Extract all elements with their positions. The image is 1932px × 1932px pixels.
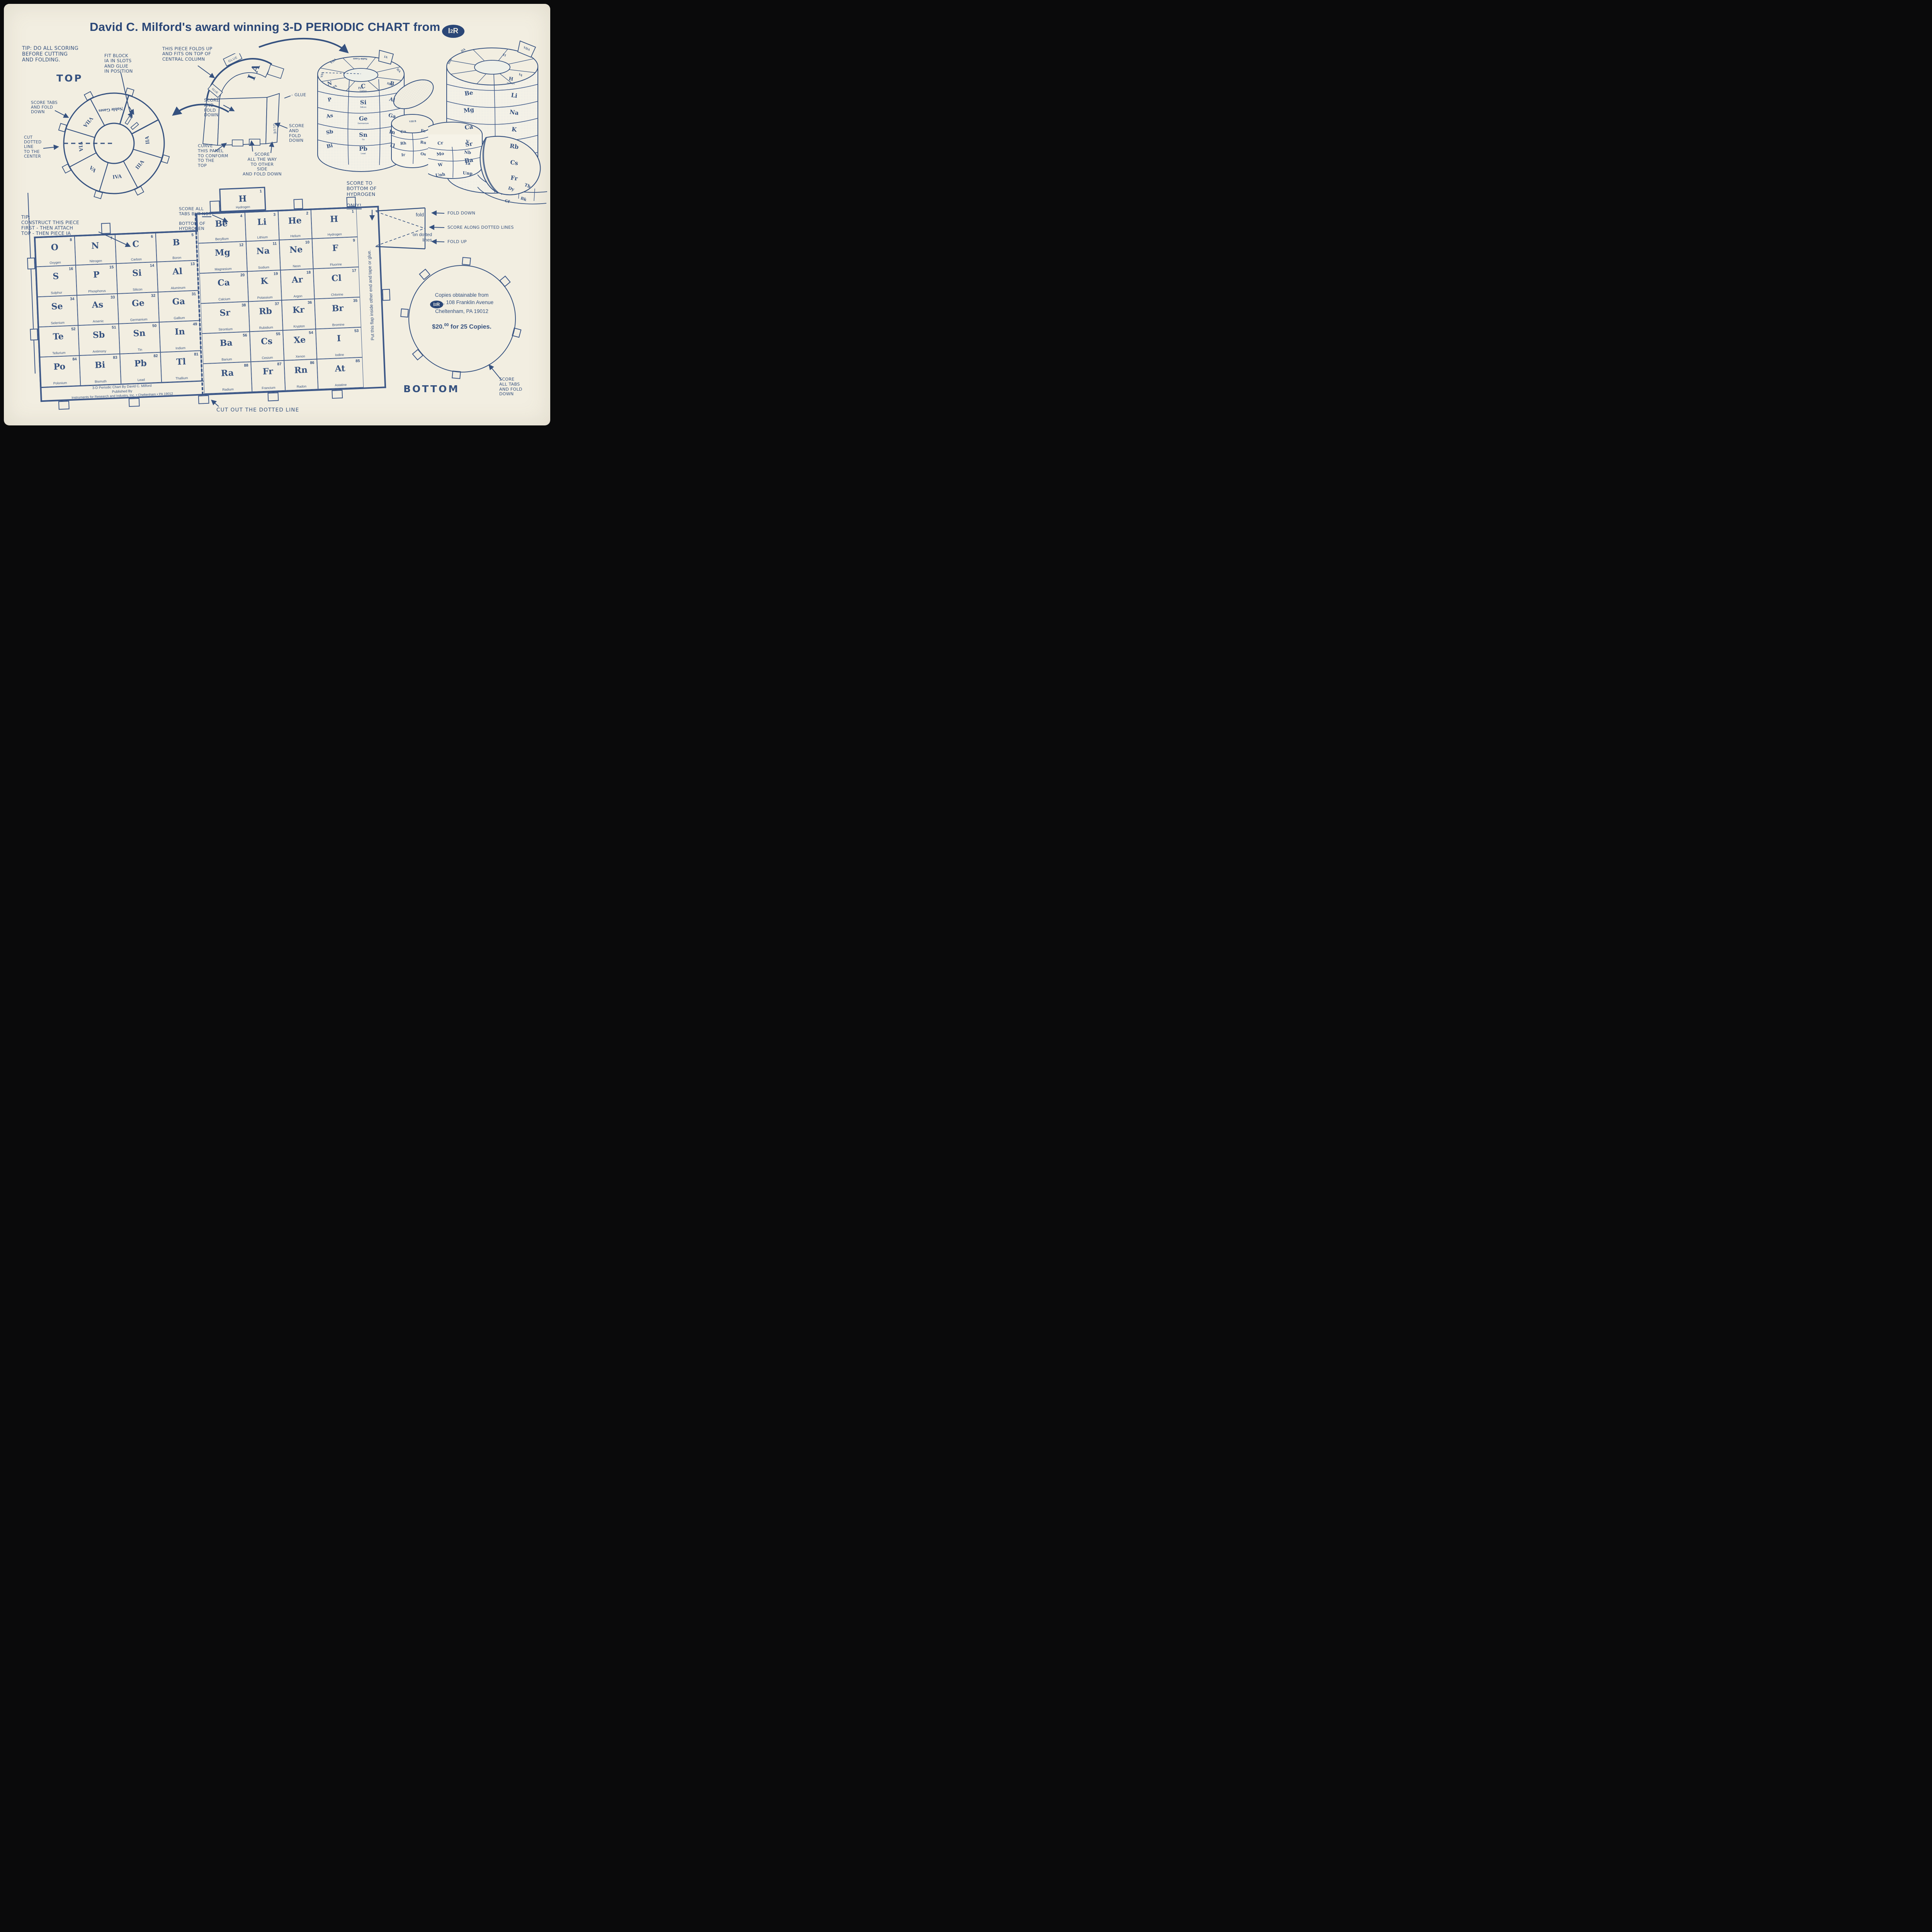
element-cell-Br: 35BrBromine bbox=[315, 297, 361, 329]
element-cell-Kr: 36KrKrypton bbox=[282, 299, 316, 330]
element-symbol: N bbox=[75, 240, 115, 252]
element-name: Radon bbox=[286, 384, 318, 389]
glue-tab bbox=[293, 199, 303, 209]
element-symbol: Ca bbox=[200, 277, 248, 289]
element-cell-Ne: 10NeNeon bbox=[279, 239, 313, 270]
element-cell-Ga: 31GaGallium bbox=[158, 291, 200, 322]
element-symbol: Tl bbox=[161, 356, 201, 367]
ring-segment-label-4: VIA bbox=[77, 141, 83, 152]
order-price: $20.00 for 25 Copies. bbox=[417, 323, 506, 330]
element-cell-Ca: 20CaCalcium bbox=[199, 271, 248, 303]
element-name: Astatine bbox=[318, 382, 363, 388]
model-label: Ta bbox=[465, 161, 471, 166]
element-symbol: Ra bbox=[204, 367, 251, 379]
element-symbol: Se bbox=[37, 301, 77, 312]
element-symbol: As bbox=[78, 299, 118, 311]
model-label: Germanium bbox=[358, 122, 369, 125]
element-cell-O: 8OOxygen bbox=[34, 235, 76, 267]
end-flap-diagram bbox=[376, 207, 434, 250]
note-score-hydrogen: SCORE TO BOTTOM OF HYDROGEN ONLY! bbox=[347, 175, 377, 208]
element-name: Neon bbox=[281, 264, 313, 269]
element-symbol: Sb bbox=[79, 329, 119, 341]
model-label: Fe bbox=[420, 129, 426, 133]
element-name: Boron bbox=[157, 255, 197, 260]
element-name: Sulphur bbox=[37, 290, 77, 295]
element-cell-Xe: 54XeXenon bbox=[283, 329, 317, 360]
element-cell-N: 7NNitrogen bbox=[75, 233, 116, 265]
bottom-glue-tab bbox=[400, 308, 409, 318]
element-symbol: F bbox=[313, 242, 358, 254]
element-name: Thallium bbox=[162, 375, 202, 381]
model-label: Lead bbox=[361, 153, 366, 155]
element-symbol: Si bbox=[117, 267, 157, 279]
note-score-all-tabs: SCORE ALL TABS AND FOLD DOWN bbox=[499, 377, 522, 397]
model-label: Tin bbox=[362, 139, 364, 141]
i2r-logo-small: I2R bbox=[430, 301, 443, 308]
model-label: Bk bbox=[520, 196, 527, 202]
element-cell-C: 6CCarbon bbox=[115, 232, 157, 264]
element-name: Phosphorus bbox=[77, 288, 117, 294]
periodic-table-template: 8OOxygen16SSulphur34SeSelenium52TeTellur… bbox=[27, 178, 400, 420]
element-cell-Bi: 83BiBismuth bbox=[79, 354, 121, 386]
element-cell-Li: 3LiLithium bbox=[245, 210, 279, 241]
element-name: Francium bbox=[252, 385, 285, 390]
element-symbol: Cs bbox=[250, 336, 283, 347]
element-symbol: Cl bbox=[314, 272, 359, 284]
model-label: W bbox=[437, 162, 443, 168]
element-name: Oxygen bbox=[35, 260, 75, 265]
glue-tab bbox=[198, 395, 209, 404]
element-cell-Na: 11NaSodium bbox=[246, 240, 281, 271]
assembled-model-right: IIAIIIAIAVAVIIAHLiNaKRbCsFrHydrogenBeMgC… bbox=[428, 39, 550, 205]
page-title: David C. Milford's award winning 3-D PER… bbox=[4, 20, 550, 38]
element-name: Strontium bbox=[202, 326, 249, 332]
element-name: Hydrogen bbox=[221, 204, 265, 210]
model-label: VIII B bbox=[409, 120, 417, 123]
element-symbol: Kr bbox=[282, 304, 315, 316]
element-name: Indium bbox=[161, 345, 201, 350]
glue-tab bbox=[58, 401, 70, 410]
element-name: Beryllium bbox=[198, 236, 245, 242]
arrow-fold-up bbox=[433, 241, 444, 242]
element-cell-H: 1HHydrogen bbox=[311, 207, 357, 239]
glue-tab bbox=[332, 390, 343, 399]
element-name: Tellurium bbox=[39, 350, 79, 355]
element-symbol: Al bbox=[157, 266, 197, 277]
glue-tab bbox=[129, 398, 140, 407]
element-cell-Ba: 56BaBarium bbox=[202, 332, 251, 364]
element-cell-Cs: 55CsCesium bbox=[250, 330, 284, 362]
element-cell-H-top: 1HHydrogen bbox=[219, 187, 266, 212]
element-symbol: K bbox=[248, 276, 281, 287]
model-label: Sn bbox=[359, 131, 367, 138]
element-cell-B: 5BBoron bbox=[156, 230, 197, 262]
element-name: Rubidium bbox=[250, 325, 282, 330]
note-glue-dash: - GLUE bbox=[291, 93, 306, 98]
model-label: Rh bbox=[400, 141, 406, 146]
element-symbol: Br bbox=[315, 303, 360, 315]
element-name: Antimony bbox=[80, 349, 119, 354]
note-fit-block: FIT BLOCK IA IN SLOTS AND GLUE IN POSITI… bbox=[104, 53, 133, 74]
element-name: Argon bbox=[282, 294, 314, 299]
note-cut-out-line: CUT OUT THE DOTTED LINE bbox=[216, 407, 299, 413]
model-label: Ca bbox=[464, 123, 473, 131]
element-cell-Te: 52TeTellurium bbox=[37, 325, 79, 357]
element-symbol: Na bbox=[247, 245, 279, 257]
model-label: Cf bbox=[504, 199, 510, 204]
element-name: Cesium bbox=[251, 355, 284, 360]
element-symbol: Sr bbox=[201, 307, 249, 319]
element-name: Carbon bbox=[116, 257, 156, 262]
note-score-not: SCORE ALL TABS BUT NOT BOTTOM OF HYDROGE… bbox=[179, 202, 211, 231]
element-name: Silicon bbox=[117, 287, 157, 292]
title-text: David C. Milford's award winning 3-D PER… bbox=[90, 20, 440, 34]
element-name: Iodine bbox=[317, 352, 362, 358]
element-symbol: Pb bbox=[121, 358, 161, 369]
element-name: Hydrogen bbox=[312, 231, 357, 237]
element-name: Barium bbox=[203, 356, 250, 362]
element-name: Tin bbox=[120, 347, 160, 352]
element-cell-P: 15PPhosphorus bbox=[76, 264, 117, 295]
element-name: Gallium bbox=[159, 315, 199, 321]
element-name: Fluorine bbox=[313, 262, 358, 267]
fold-label: fold bbox=[416, 212, 424, 218]
element-symbol: Mg bbox=[199, 247, 246, 259]
model-label: Fr bbox=[510, 174, 519, 182]
i2r-logo: I2R bbox=[442, 25, 464, 38]
element-symbol: Ne bbox=[280, 244, 312, 255]
flap-instruction: Put this flap inside other end and tape … bbox=[366, 216, 376, 374]
element-symbol: I bbox=[316, 333, 362, 345]
element-name: Lead bbox=[121, 377, 161, 383]
model-label: V bbox=[466, 139, 470, 145]
element-cell-Sn: 50SnTin bbox=[119, 322, 160, 354]
assembled-model-left: VIAVIIANoble GasesIAIIAIIIAIVAVACCarbonS… bbox=[314, 49, 437, 181]
model-label: Carbon bbox=[360, 90, 367, 92]
element-symbol: Ga bbox=[158, 296, 199, 308]
order-line3: Cheltenham, PA 19012 bbox=[417, 308, 506, 314]
element-name: Calcium bbox=[201, 296, 248, 302]
element-symbol: He bbox=[279, 215, 311, 226]
element-symbol: Rn bbox=[285, 364, 317, 376]
element-name: Potassium bbox=[248, 295, 281, 300]
element-name: Polonium bbox=[40, 380, 80, 386]
element-name: Germanium bbox=[119, 317, 158, 322]
model-label: Unp bbox=[463, 170, 473, 176]
element-cell-At: 85AtAstatine bbox=[317, 357, 364, 389]
ia-piece-label: I A bbox=[246, 62, 263, 82]
element-name: Magnesium bbox=[199, 266, 247, 272]
element-symbol: Fr bbox=[252, 366, 284, 377]
element-name: Chlorine bbox=[315, 292, 359, 298]
element-cell-Po: 84PoPolonium bbox=[39, 355, 80, 387]
scanned-sheet: David C. Milford's award winning 3-D PER… bbox=[4, 4, 550, 425]
element-symbol: Te bbox=[38, 331, 78, 342]
element-symbol: O bbox=[34, 241, 75, 253]
order-line2: I2R, 108 Franklin Avenue bbox=[417, 299, 506, 308]
element-name: Radium bbox=[204, 386, 252, 392]
element-cell-Cl: 17ClChlorine bbox=[313, 267, 360, 299]
element-symbol: B bbox=[156, 237, 196, 248]
element-symbol: Po bbox=[39, 361, 80, 372]
element-cell-Sr: 38SrStrontium bbox=[201, 301, 250, 333]
element-name: Selenium bbox=[38, 320, 78, 325]
model-label: Mg bbox=[463, 106, 475, 114]
model-label: Na bbox=[509, 109, 519, 117]
element-name: Krypton bbox=[283, 324, 315, 329]
note-score-along: SCORE ALONG DOTTED LINES bbox=[447, 225, 514, 230]
element-name: Sodium bbox=[247, 265, 280, 270]
arrow-fold-down bbox=[433, 213, 444, 213]
model-label: Si bbox=[360, 99, 367, 106]
note-cut-dotted: CUT DOTTED LINE TO THE CENTER bbox=[24, 135, 42, 159]
element-cell-S: 16SSulphur bbox=[35, 265, 77, 297]
model-label: Pb bbox=[359, 145, 367, 152]
element-symbol: Ge bbox=[118, 298, 158, 309]
model-label: Ru bbox=[420, 140, 427, 145]
element-name: Bromine bbox=[316, 322, 361, 328]
element-symbol: S bbox=[36, 270, 76, 282]
ring-segment-label-0: IIA bbox=[145, 136, 151, 145]
element-cell-Ge: 32GeGermanium bbox=[117, 292, 159, 324]
order-info: Copies obtainable from I2R, 108 Franklin… bbox=[417, 292, 506, 330]
element-cell-Ar: 18ArArgon bbox=[281, 269, 315, 300]
element-name: Xenon bbox=[284, 354, 316, 359]
element-cell-Tl: 81TlThallium bbox=[160, 350, 202, 382]
note-tip-construct: TIP: CONSTRUCT THIS PIECE FIRST - THEN A… bbox=[21, 215, 79, 236]
element-symbol: Bi bbox=[80, 359, 120, 371]
model-label: Tl bbox=[389, 142, 395, 149]
model-label: C bbox=[361, 83, 366, 90]
element-symbol: Ba bbox=[202, 337, 250, 349]
model-label: H bbox=[509, 76, 514, 82]
element-name: Nitrogen bbox=[76, 258, 116, 264]
element-symbol: Xe bbox=[284, 335, 316, 346]
element-cell-Se: 34SeSelenium bbox=[36, 295, 78, 327]
note-fold-down: FOLD DOWN bbox=[447, 211, 475, 216]
model-label: Cr bbox=[437, 140, 443, 146]
model-label: Ir bbox=[401, 153, 406, 157]
element-symbol: C bbox=[116, 238, 156, 250]
element-symbol: In bbox=[160, 326, 200, 338]
glue-panel-label: GLUE bbox=[272, 123, 277, 134]
element-symbol: P bbox=[76, 269, 116, 281]
on-dotted-lines-label: on dotted lines bbox=[402, 232, 432, 243]
order-line1: Copies obtainable from bbox=[417, 292, 506, 298]
element-cell-Sb: 51SbAntimony bbox=[78, 324, 120, 355]
model-label: Rb bbox=[509, 143, 519, 151]
element-symbol: Rb bbox=[249, 306, 282, 317]
model-label: Ge bbox=[359, 115, 367, 122]
element-symbol: H bbox=[311, 213, 357, 225]
bottom-glue-tab bbox=[462, 257, 471, 265]
model-label: Silicon bbox=[360, 106, 366, 109]
note-fold-up: FOLD UP bbox=[447, 240, 467, 245]
element-symbol: Ar bbox=[281, 274, 313, 286]
element-symbol: At bbox=[318, 363, 363, 375]
glue-tab bbox=[27, 258, 35, 270]
element-symbol: H bbox=[221, 193, 265, 205]
element-cell-I: 53IIodine bbox=[316, 327, 362, 359]
element-cell-Rn: 86RnRadon bbox=[284, 359, 318, 390]
element-symbol: Li bbox=[245, 216, 278, 228]
model-label: Mo bbox=[436, 151, 444, 157]
element-name: Aluminum bbox=[158, 285, 198, 291]
ia-piece-template: I A GLUE GLUE GLUE bbox=[195, 53, 292, 165]
ring-segment-label-2: IVA bbox=[112, 173, 122, 180]
model-label: Os bbox=[420, 152, 427, 156]
element-cell-Mg: 12MgMagnesium bbox=[198, 241, 247, 274]
element-cell-Si: 14SiSilicon bbox=[116, 262, 158, 294]
element-cell-Pb: 82PbLead bbox=[120, 352, 162, 384]
model-label: Nb bbox=[464, 150, 471, 155]
glue-tab bbox=[101, 223, 111, 234]
glue-tab bbox=[30, 328, 38, 340]
glue-tab bbox=[382, 289, 390, 301]
element-cell-Rb: 37RbRubidium bbox=[248, 300, 283, 332]
note-tip-scoring: TIP: DO ALL SCORING BEFORE CUTTING AND F… bbox=[22, 46, 78, 63]
element-cell-Ra: 88RaRadium bbox=[203, 362, 252, 394]
element-name: Lithium bbox=[246, 235, 279, 240]
element-name: Helium bbox=[279, 233, 311, 238]
element-name: Arsenic bbox=[78, 318, 118, 324]
model-label: Li bbox=[510, 92, 518, 99]
model-label: Cs bbox=[510, 159, 519, 167]
model-label: Co bbox=[400, 129, 406, 134]
bottom-piece-label: BOTTOM bbox=[403, 383, 459, 395]
element-symbol: Sn bbox=[119, 328, 160, 339]
model-ring-label: Noble Gases bbox=[353, 57, 367, 60]
model-label: Be bbox=[464, 89, 474, 97]
element-cell-Fr: 87FrFrancium bbox=[251, 361, 285, 392]
element-name: Bismuth bbox=[81, 379, 121, 384]
element-cell-F: 9FFluorine bbox=[312, 237, 359, 269]
element-cell-In: 49InIndium bbox=[159, 321, 201, 352]
element-cell-Al: 13AlAluminum bbox=[157, 260, 199, 292]
element-cell-K: 19KPotassium bbox=[247, 270, 282, 301]
element-cell-As: 33AsArsenic bbox=[77, 294, 119, 325]
element-cell-He: 2HeHelium bbox=[278, 209, 312, 240]
glue-tab bbox=[268, 392, 279, 401]
